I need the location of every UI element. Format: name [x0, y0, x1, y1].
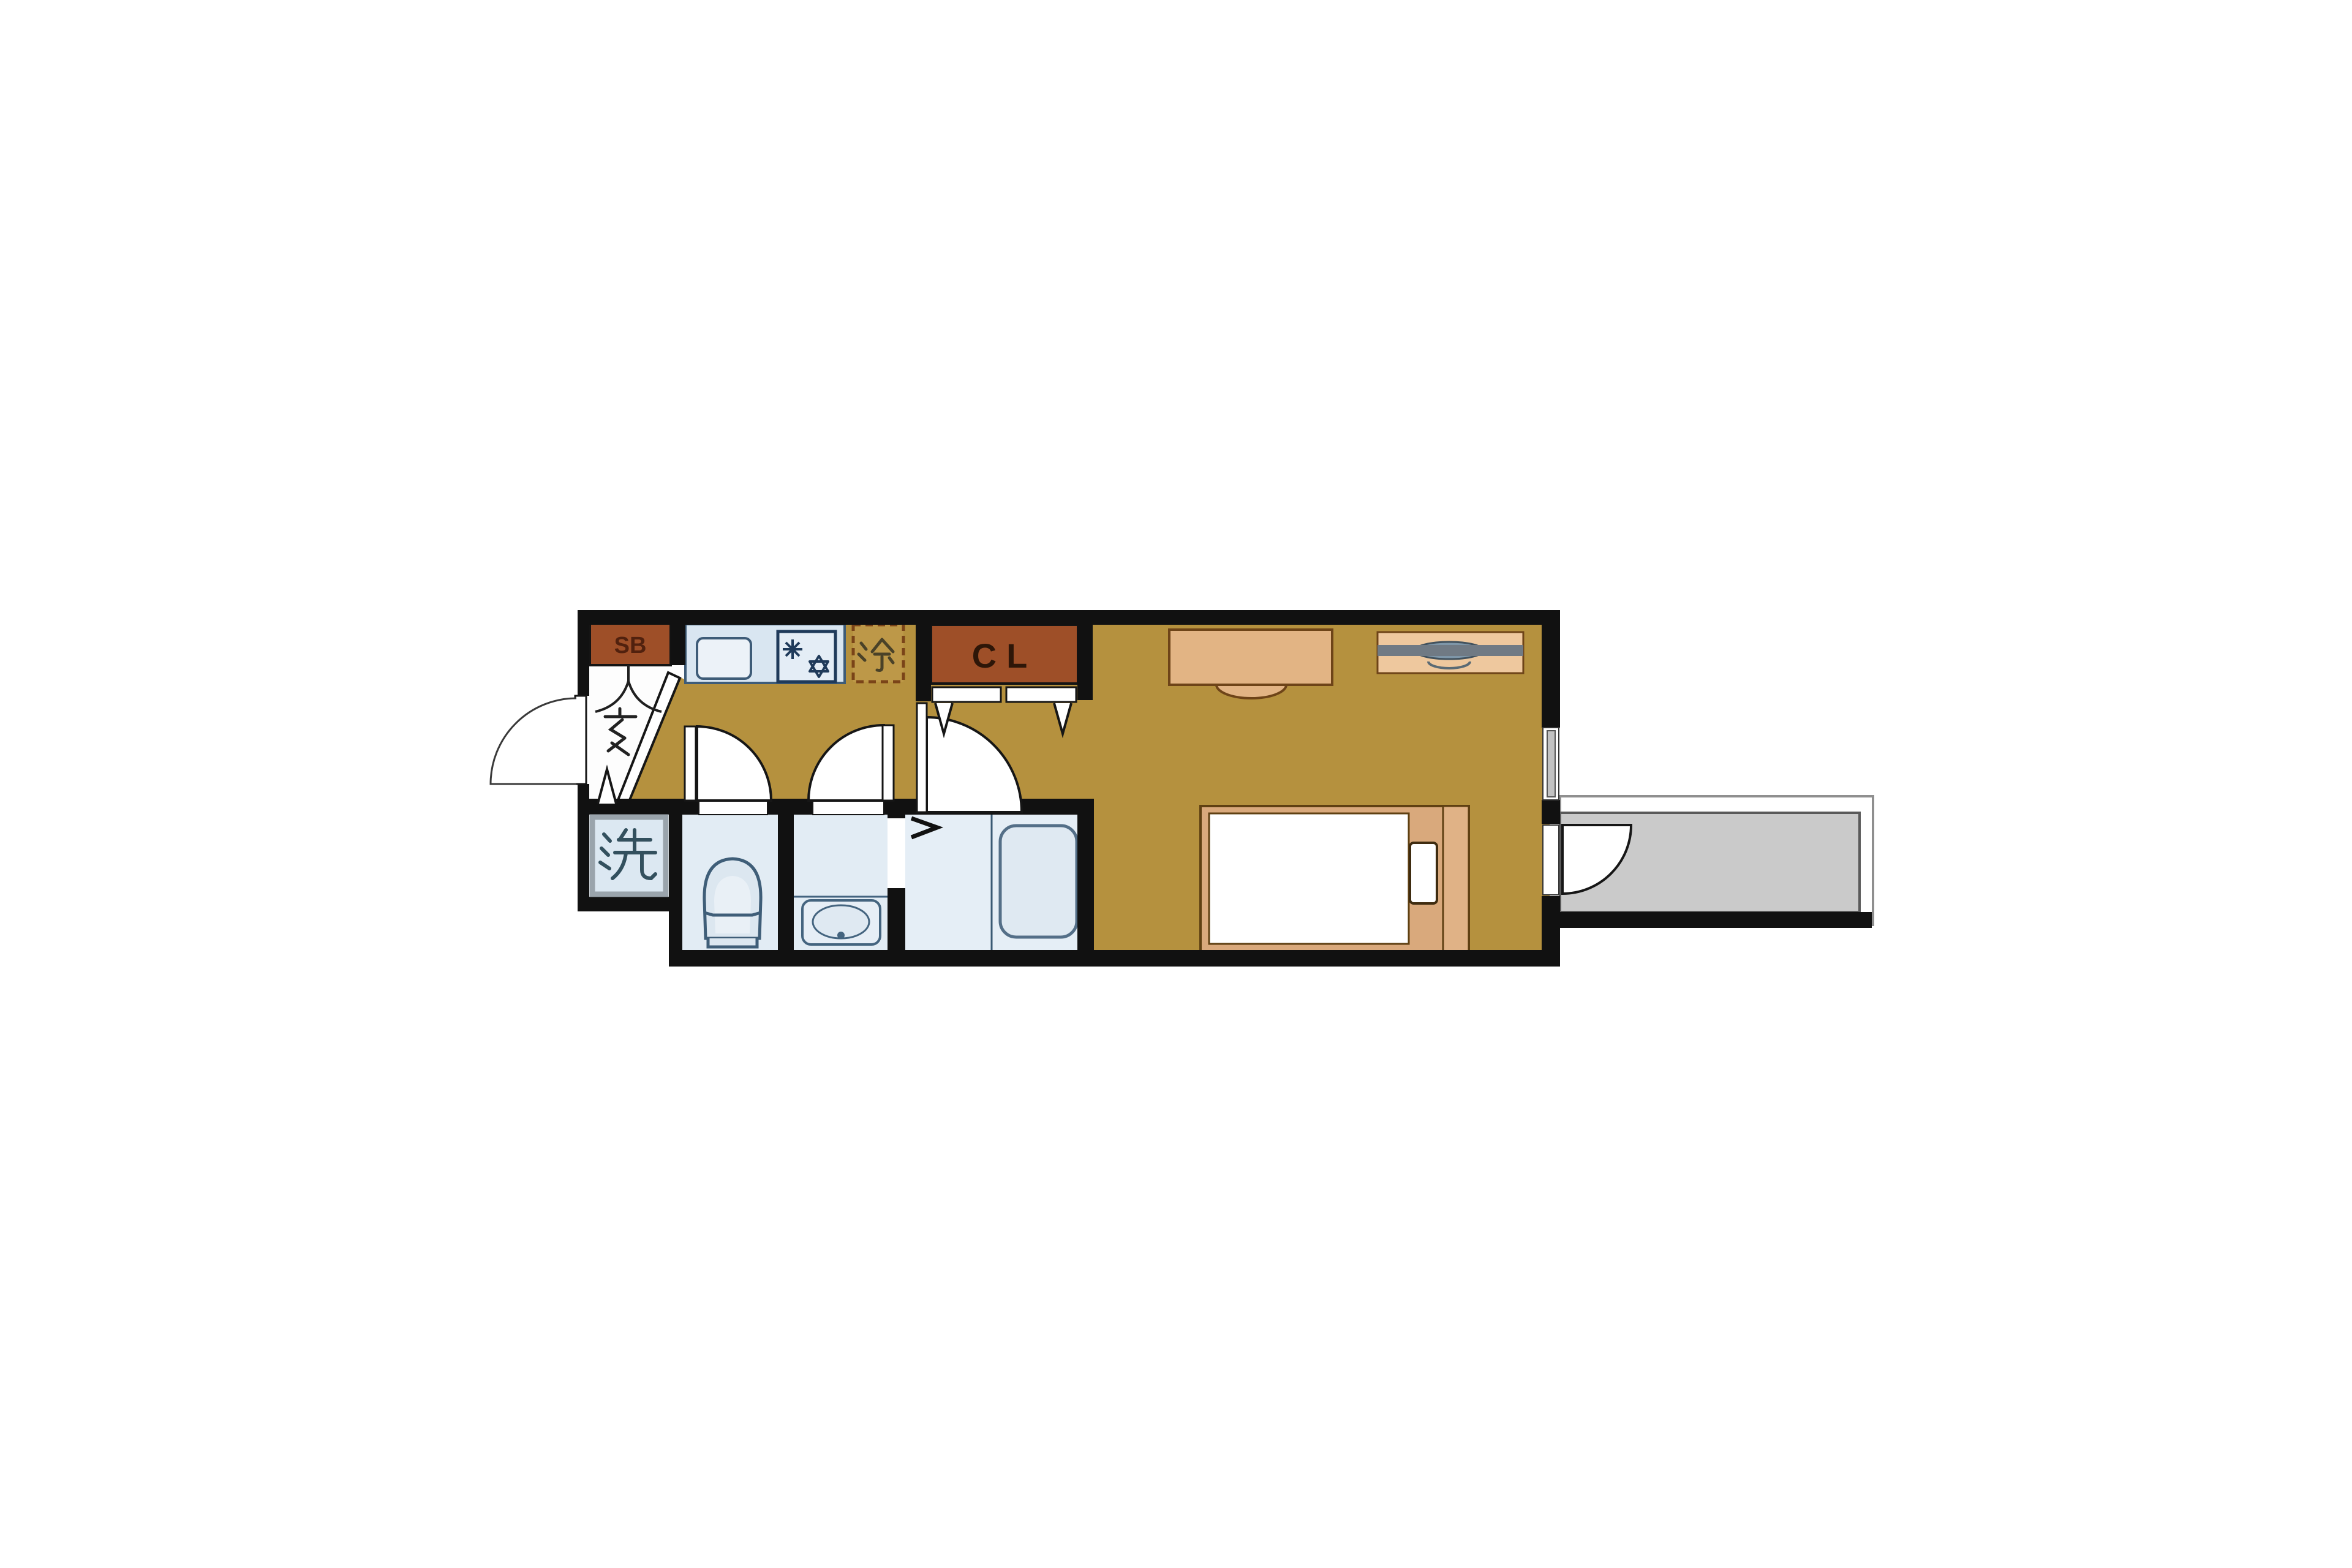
svg-text:CL: CL — [972, 636, 1038, 675]
svg-text:SB: SB — [614, 633, 647, 658]
